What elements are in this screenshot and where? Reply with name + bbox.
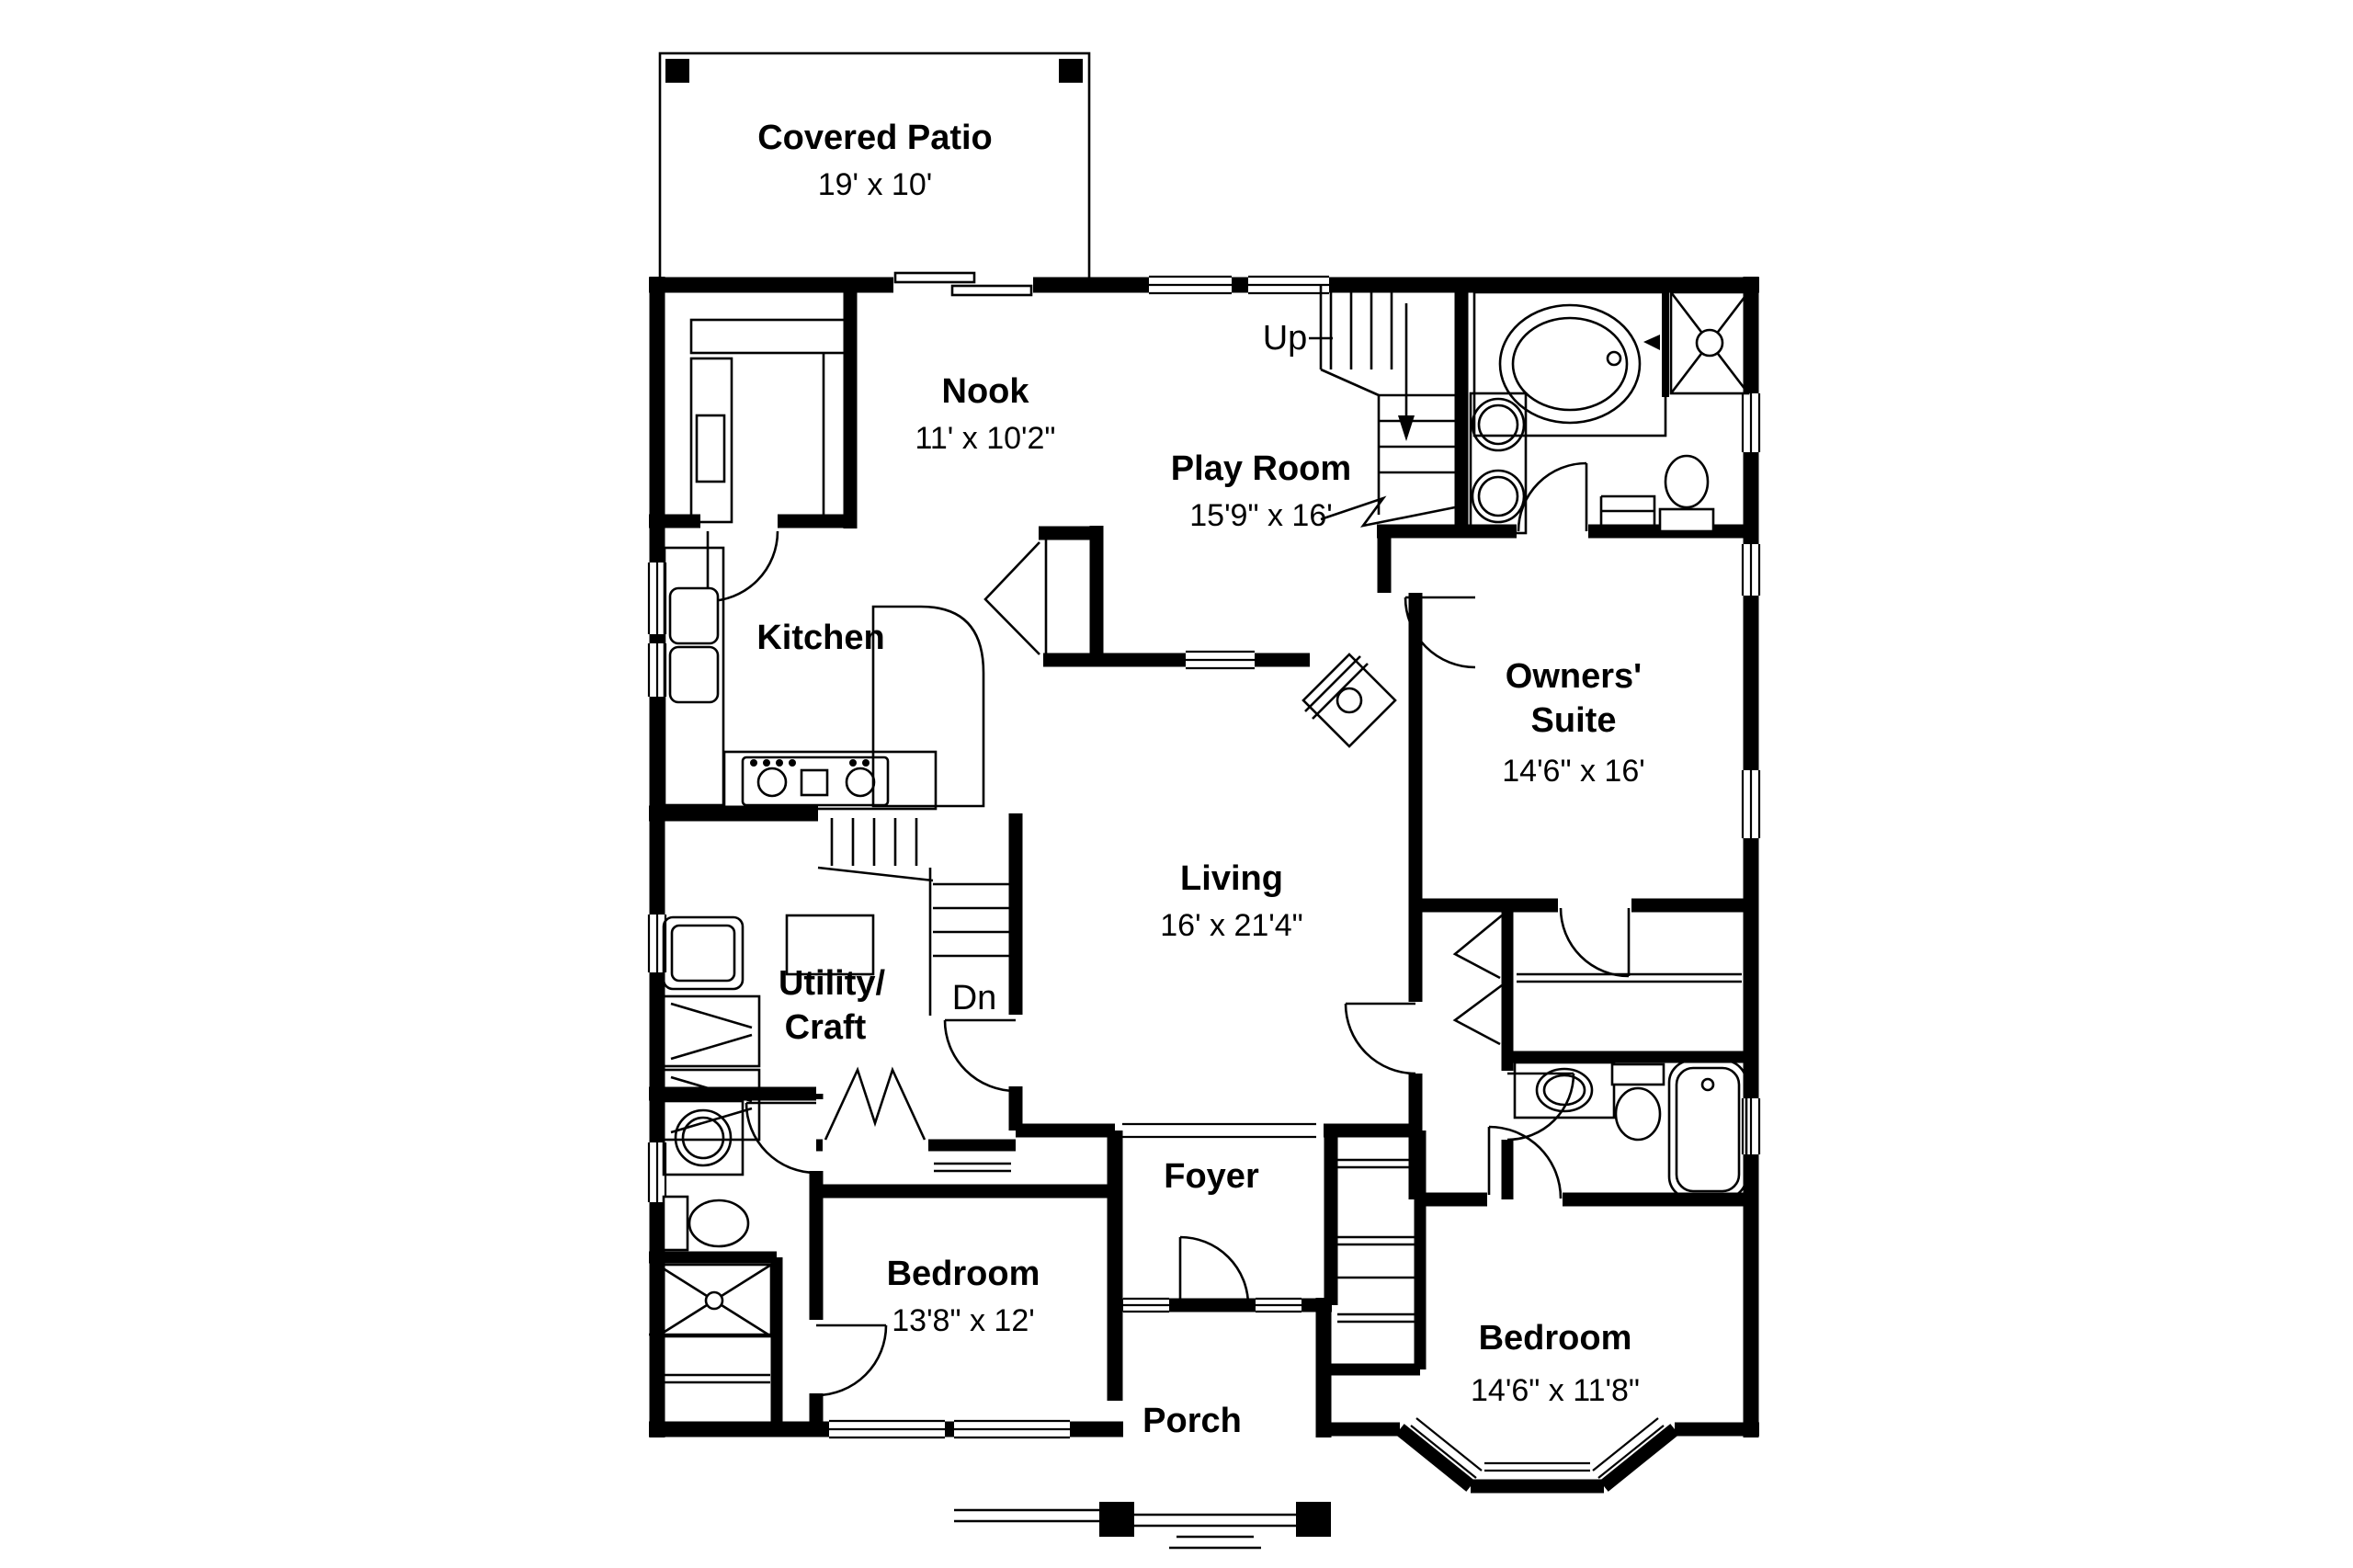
- owners-bath-fixtures: [1471, 292, 1748, 533]
- utility-sink-icon: [664, 917, 743, 989]
- room-dims-bedroom-right: 14'6" x 11'8": [1471, 1373, 1640, 1408]
- floor-plan-drawing: Covered Patio 19' x 10' Nook 11' x 10'2"…: [0, 0, 2353, 1568]
- closet-shelf-icon: [1337, 1160, 1415, 1167]
- room-label-utility-1: Utility/: [779, 964, 886, 1003]
- room-labels: Covered Patio 19' x 10' Nook 11' x 10'2"…: [756, 119, 1644, 1440]
- swing-door-icon: [1561, 908, 1629, 976]
- round-sink-icon: [1479, 405, 1518, 444]
- closet-shelf-icon: [1337, 1314, 1415, 1322]
- wall-niche: [1186, 650, 1255, 670]
- bath2-fixtures: [1515, 974, 1746, 1199]
- range-icon: [743, 757, 888, 805]
- toilet-icon: [664, 1197, 748, 1250]
- room-label-kitchen: Kitchen: [756, 619, 884, 657]
- window-icon: [1248, 275, 1329, 295]
- window-icon: [1741, 1098, 1761, 1154]
- bathtub-icon: [1500, 305, 1640, 423]
- closet-column: [1331, 1160, 1420, 1322]
- round-sink-icon: [1472, 471, 1524, 522]
- window-icon: [954, 1419, 1070, 1439]
- window-icon: [1149, 275, 1232, 295]
- kitchen-fixtures: [665, 320, 1094, 809]
- room-label-living: Living: [1180, 859, 1283, 898]
- closet-shelf-icon: [1337, 1237, 1415, 1244]
- room-dims-living: 16' x 21'4": [1160, 908, 1303, 943]
- room-label-owners-suite-2: Suite: [1531, 701, 1617, 740]
- closet-shelf-icon: [1517, 974, 1742, 982]
- double-kitchen-sink-icon: [670, 647, 718, 702]
- oven-icon: [697, 415, 724, 482]
- stairs-up: [1309, 285, 1455, 526]
- corner-fireplace-icon: [1303, 654, 1395, 746]
- window-icon: [1741, 544, 1761, 596]
- porch-details: [954, 1502, 1331, 1548]
- swing-door-icon: [945, 1020, 1016, 1091]
- round-sink-icon: [1479, 477, 1518, 516]
- room-dims-play-room: 15'9" x 16': [1189, 498, 1333, 533]
- stair-label-up: Up: [1263, 319, 1308, 358]
- swing-door-icon: [708, 531, 778, 601]
- kitchen-island: [873, 607, 983, 806]
- front-door-icon: [1180, 1237, 1248, 1305]
- shower-icon: [1643, 292, 1748, 393]
- room-label-covered-patio: Covered Patio: [757, 119, 993, 157]
- window-icon: [1741, 393, 1761, 452]
- shower-icon: [657, 1265, 771, 1336]
- swing-door-icon: [746, 1103, 816, 1173]
- window-icon: [829, 1419, 945, 1439]
- stair-label-dn: Dn: [952, 979, 997, 1017]
- porch-rail: [954, 1510, 1099, 1521]
- window-icon: [1256, 1297, 1302, 1313]
- window-icon: [1741, 770, 1761, 838]
- toilet-icon: [1660, 456, 1713, 531]
- porch-steps: [1169, 1537, 1261, 1548]
- room-dims-nook: 11' x 10'2": [915, 421, 1056, 456]
- stair-arrow-icon: [1398, 415, 1415, 441]
- cabinet-icon: [691, 320, 853, 353]
- patio-post-icon: [1059, 59, 1083, 83]
- porch-post-icon: [1296, 1502, 1331, 1537]
- closet-shelf-icon: [649, 1335, 777, 1382]
- swing-door-icon: [1507, 1074, 1574, 1140]
- bath1-fixtures: [649, 1101, 777, 1382]
- swing-door-icon: [1346, 1004, 1415, 1074]
- window-icon: [1123, 1297, 1169, 1313]
- swing-door-icon: [816, 1325, 886, 1395]
- patio-post-icon: [665, 59, 689, 83]
- porch-post-icon: [1099, 1502, 1134, 1537]
- round-sink-icon: [1472, 399, 1524, 450]
- bifold-door-icon: [825, 542, 1502, 1140]
- room-label-play-room: Play Room: [1171, 449, 1351, 488]
- sliding-door-icon: [893, 273, 1033, 295]
- porch-rail: [1134, 1515, 1296, 1526]
- room-dims-covered-patio: 19' x 10': [818, 167, 933, 202]
- closet-shelf-icon: [934, 1164, 1011, 1171]
- room-label-nook: Nook: [942, 372, 1030, 411]
- cased-opening: [1122, 1124, 1316, 1137]
- room-label-foyer: Foyer: [1164, 1157, 1259, 1196]
- tub-platform: [1474, 292, 1665, 436]
- room-label-bedroom-front: Bedroom: [887, 1255, 1040, 1293]
- room-dims-bedroom-front: 13'8" x 12': [892, 1303, 1035, 1338]
- double-kitchen-sink-icon: [670, 588, 718, 643]
- bathtub-icon: [1669, 1061, 1746, 1199]
- closet-shelf-icon: [1046, 539, 1094, 654]
- washer-icon: [664, 996, 759, 1066]
- room-label-utility-2: Craft: [785, 1008, 867, 1047]
- room-label-bedroom-right: Bedroom: [1479, 1319, 1632, 1358]
- room-label-owners-suite-1: Owners': [1506, 657, 1642, 696]
- round-sink-icon: [1544, 1075, 1585, 1105]
- toilet-icon: [1612, 1064, 1664, 1140]
- room-label-porch: Porch: [1142, 1402, 1242, 1440]
- swing-door-icon: [1518, 463, 1586, 531]
- room-dims-owners-suite: 14'6" x 16': [1502, 754, 1645, 789]
- floor-plan-page: Covered Patio 19' x 10' Nook 11' x 10'2"…: [0, 0, 2353, 1568]
